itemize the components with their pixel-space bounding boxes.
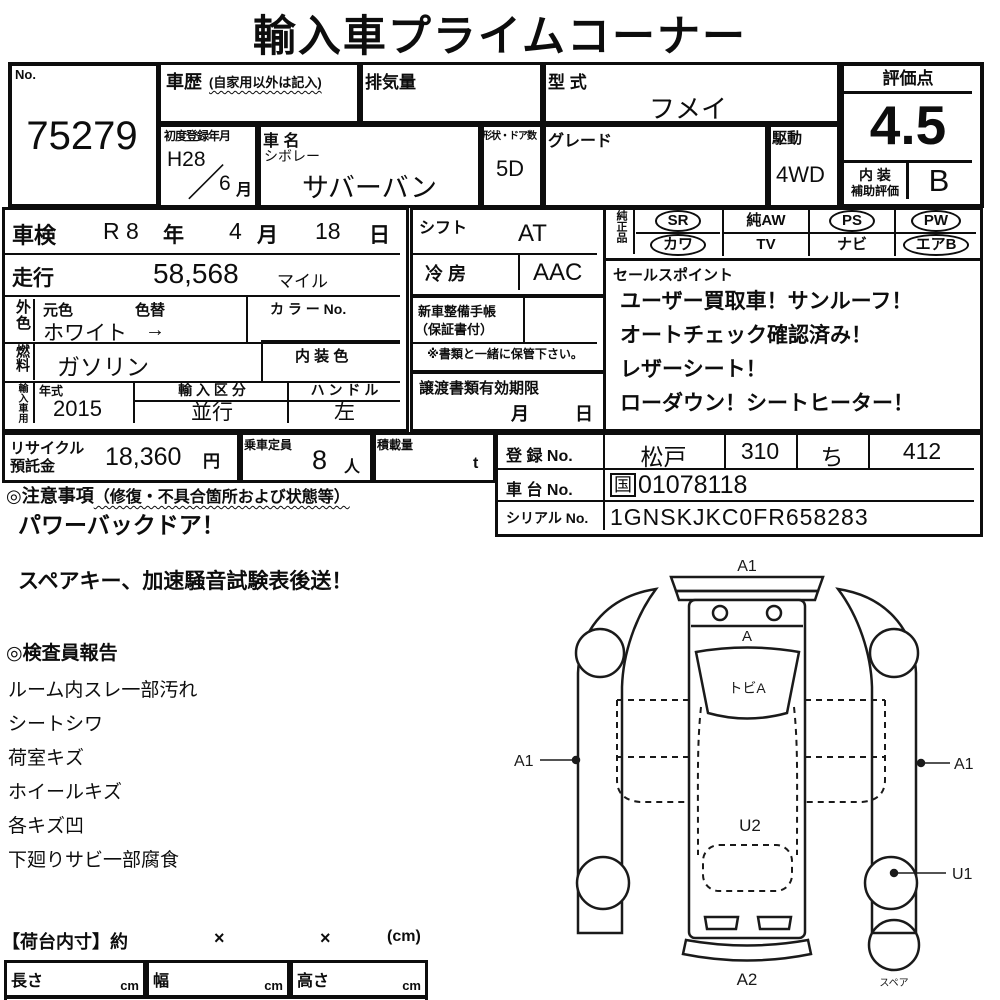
recycle-box: リサイクル 預託金 18,360 円 (2, 432, 243, 483)
inspector-item: 下廻りサビ一部腐食 (8, 845, 179, 872)
score-box: 評価点 4.5 内 装 補助評価 B (840, 62, 984, 208)
cargo-length-cell: 長さ cm (4, 960, 146, 998)
car-damage-diagram: A1 A トビA A1 A1 U2 U1 A2 スペア (500, 555, 995, 1000)
chassis-divider (603, 470, 605, 500)
cargo-dims-title: 【荷台内寸】約 (2, 928, 128, 954)
doors-value: 5D (481, 156, 539, 182)
color-no-cell: カ ラ ー No. (246, 297, 400, 342)
ac-value: AAC (533, 259, 582, 287)
interior-color-label: 内 装 色 (295, 345, 348, 366)
color-change-arrow: → (145, 319, 165, 342)
recycle-value: 18,360 (105, 443, 181, 472)
sales-point-line: ローダウン！シートヒーター！ (620, 387, 914, 417)
drive-cell: 駆動 4WD (765, 121, 840, 208)
shaken-day-unit: 日 (369, 219, 390, 249)
load-label: 積載量 (377, 436, 413, 453)
lot-number-value: 75279 (12, 114, 152, 159)
reg-kana: ち (798, 438, 866, 472)
car-maker: シボレー (264, 146, 320, 166)
score-value: 4.5 (844, 92, 972, 158)
score-label: 評価点 (844, 66, 972, 94)
diagram-label-a1-left: A1 (514, 753, 534, 770)
rear-left-wheel (577, 857, 629, 909)
equipment-side-label: 純正品 (609, 210, 635, 254)
shift-row: シフト AT (413, 210, 597, 255)
transfer-day-unit: 日 (575, 400, 593, 426)
sales-points-box: セールスポイント ユーザー買取車！サンルーフ！ オートチェック確認済み！ レザー… (603, 258, 983, 432)
equip-pw: PW (894, 210, 976, 232)
handle-label: ハ ン ド ル (289, 383, 400, 402)
grade-cell: グレード (540, 121, 771, 208)
first-reg-month: 6 (219, 172, 231, 196)
inspector-item: ルーム内スレ一部汚れ (8, 675, 197, 702)
service-book-box: 新車整備手帳 （保証書付） ※書類と一緒に保管下さい。 (410, 295, 606, 373)
service-book-label2: （保証書付） (415, 319, 493, 338)
interior-label-line2: 補助評価 (844, 182, 906, 199)
ac-label: 冷 房 (425, 260, 521, 286)
change-color-label: 色替 (135, 299, 165, 320)
diagram-label-hood-a: A (742, 628, 752, 645)
inspector-item: ホイールキズ (8, 777, 122, 804)
capacity-value: 8 (312, 445, 327, 476)
first-reg-label: 初度登録年月 (164, 127, 230, 144)
capacity-box: 乗車定員 8 人 (237, 432, 376, 483)
dashed-zone-left (617, 700, 689, 802)
page-title: 輸入車プライムコーナー (0, 2, 1000, 64)
rear-bumper (683, 940, 811, 961)
front-bumper (671, 577, 823, 591)
cargo-dims-unit: (cm) (387, 928, 421, 946)
load-box: 積載量 t (370, 432, 496, 483)
transfer-box: 譲渡書類有効期限 月 日 (410, 371, 606, 432)
handle-cell: ハ ン ド ル 左 (287, 383, 400, 423)
diagram-label-a1-right: A1 (954, 756, 974, 773)
inspector-report-label: ◎検査員報告 (6, 638, 118, 665)
diagram-label-u2: U2 (739, 816, 761, 835)
a1-left-dot (573, 757, 579, 763)
displacement-cell: 排気量 (357, 62, 546, 127)
notes-header: ◎注意事項（修復・不具合箇所および状態等） (6, 482, 350, 508)
import-class-label: 輸 入 区 分 (135, 383, 289, 402)
ac-row: 冷 房 AAC (413, 255, 597, 288)
import-row: 輸入車用 年式 2015 輸 入 区 分 並行 ハ ン ド ル 左 (5, 383, 400, 423)
chassis-value: 01078118 (638, 471, 747, 500)
first-reg-month-unit: 月 (236, 176, 252, 200)
diagram-label-a2: A2 (737, 970, 758, 989)
cargo-height-cell: 高さ cm (290, 960, 428, 998)
shaken-month-unit: 月 (257, 219, 278, 249)
front-right-wheel (870, 629, 918, 677)
cargo-dims-x1: × (214, 928, 225, 949)
recycle-unit: 円 (203, 447, 220, 472)
cargo-width-cell: 幅 cm (146, 960, 290, 998)
front-left-wheel (576, 629, 624, 677)
serial-label: シリアル No. (506, 508, 588, 528)
inspector-item: シートシワ (8, 709, 103, 736)
reg-row: 登 録 No. 松戸 310 ち 412 (498, 435, 974, 470)
serial-row: シリアル No. 1GNSKJKC0FR658283 (498, 502, 974, 530)
drive-value: 4WD (768, 162, 833, 188)
doors-cell: 形状・ドア数 5D (478, 121, 546, 208)
history-note: (自家用以外は記入) (209, 72, 322, 91)
diagram-label-u1: U1 (952, 866, 973, 883)
inspector-item: 各キズ凹 (8, 811, 84, 838)
main-spec-table: 車検 R 8 年 4 月 18 日 走行 58,568 マイル 外色 元色 色替… (2, 207, 409, 432)
exterior-color-value: ホワイト (43, 317, 127, 347)
chassis-label: 車 台 No. (506, 476, 573, 500)
shift-value: AT (518, 220, 547, 248)
reg-label: 登 録 No. (506, 442, 601, 466)
cargo-width-unit: cm (264, 978, 283, 993)
inspector-item: 荷室キズ (8, 743, 84, 770)
interior-score-row: 内 装 補助評価 B (844, 160, 972, 199)
car-name-cell: 車 名 シボレー サバーバン (255, 121, 484, 208)
diagram-label-a1-top: A1 (737, 558, 757, 575)
sales-points-label: セールスポイント (613, 264, 733, 285)
fuel-side-label: 燃料 (7, 344, 35, 380)
import-year-value: 2015 (53, 396, 102, 422)
load-unit: t (473, 455, 478, 473)
equipment-box: 純正品 SR 純AW PS PW カワ TV ナビ エアB (603, 207, 983, 261)
cargo-dims-x2: × (320, 928, 331, 949)
shaken-era-unit: 年 (163, 219, 184, 249)
import-side-label: 輸入車用 (9, 383, 35, 423)
exterior-color-row: 外色 元色 色替 ホワイト → カ ラ ー No. (5, 297, 400, 344)
service-book-value-cell (525, 298, 597, 344)
notes-sub: （修復・不具合箇所および状態等） (94, 489, 350, 506)
shaken-label: 車検 (12, 218, 56, 250)
cargo-length-unit: cm (120, 978, 139, 993)
equip-navi: ナビ (808, 232, 894, 256)
handle-value: 左 (289, 402, 400, 424)
equip-kawa: カワ (636, 232, 720, 256)
service-book-label1: 新車整備手帳 (418, 301, 496, 320)
a1-right-dot (918, 760, 924, 766)
keep-note: ※書類と一緒に保管下さい。 (413, 344, 597, 364)
reg-number: 412 (870, 438, 974, 465)
doors-label: 形状・ドア数 (482, 127, 536, 142)
drive-label: 駆動 (772, 127, 802, 148)
cargo-height-unit: cm (402, 978, 421, 993)
service-book-cell: 新車整備手帳 （保証書付） (413, 298, 525, 344)
interior-color-cell: 内 装 色 (261, 340, 400, 383)
capacity-unit: 人 (344, 453, 360, 477)
mileage-row: 走行 58,568 マイル (5, 255, 400, 297)
chassis-prefix: 国 (610, 473, 636, 497)
history-cell: 車歴 (自家用以外は記入) (158, 62, 363, 127)
fuel-value: ガソリン (57, 348, 149, 382)
cargo-height-label: 高さ (297, 967, 329, 991)
shaken-row: 車検 R 8 年 4 月 18 日 (5, 210, 400, 255)
import-class-cell: 輸 入 区 分 並行 (133, 383, 289, 423)
cargo-next-row-edge (4, 996, 428, 1000)
grade-label: グレード (548, 127, 612, 151)
mileage-label: 走行 (12, 262, 54, 292)
equip-airb: エアB (894, 232, 976, 256)
lot-number-box: No. 75279 (8, 62, 160, 208)
shift-label: シフト (419, 214, 467, 238)
transfer-label: 譲渡書類有効期限 (419, 377, 539, 398)
serial-divider (603, 502, 605, 530)
cargo-length-label: 長さ (11, 967, 43, 991)
equip-sr: SR (636, 210, 720, 232)
transfer-month-unit: 月 (511, 400, 529, 426)
shipping-note: スペアキー、加速騒音試験表後送！ (18, 565, 352, 595)
lot-number-label: No. (15, 67, 36, 82)
notes-label: ◎注意事項 (6, 486, 94, 506)
interior-score-value: B (909, 163, 969, 199)
car-model: サバーバン (258, 166, 481, 205)
shaken-era: R 8 (103, 218, 139, 245)
displacement-label: 排気量 (365, 68, 416, 93)
equip-aw: 純AW (722, 210, 808, 232)
sales-point-line: ユーザー買取車！サンルーフ！ (620, 285, 912, 315)
recycle-label2: 預託金 (10, 455, 55, 476)
shaken-month: 4 (229, 218, 242, 245)
u1-dot (891, 870, 897, 876)
registration-box: 登 録 No. 松戸 310 ち 412 車 台 No. 国 01078118 … (495, 432, 983, 537)
auction-sheet: 輸入車プライムコーナー No. 75279 車歴 (自家用以外は記入) 排気量 … (0, 0, 1000, 1000)
mileage-unit: マイル (277, 267, 328, 292)
capacity-label: 乗車定員 (244, 436, 292, 453)
history-label: 車歴 (166, 68, 202, 94)
import-class-value: 並行 (135, 402, 289, 424)
first-reg-cell: 初度登録年月 H28 ／ 6 月 (158, 121, 261, 208)
ac-divider (518, 253, 520, 290)
equip-ps: PS (808, 210, 894, 232)
shift-ac-box: シフト AT 冷 房 AAC (410, 207, 606, 297)
diagram-label-spare: スペア (879, 978, 908, 989)
color-no-label: カ ラ ー No. (270, 299, 346, 319)
front-bumper-strip (676, 591, 818, 600)
mileage-value: 58,568 (153, 258, 239, 290)
reg-class: 310 (726, 438, 794, 465)
rear-right-wheel (865, 857, 917, 909)
exterior-side-label: 外色 (7, 299, 35, 341)
diagram-label-windshield: トビA (728, 680, 766, 696)
serial-value: 1GNSKJKC0FR658283 (610, 504, 869, 531)
fuel-row: 燃料 ガソリン 内 装 色 (5, 344, 400, 383)
reg-area: 松戸 (605, 438, 722, 472)
sales-point-line: オートチェック確認済み！ (620, 319, 872, 349)
sales-point-line: レザーシート！ (620, 353, 767, 383)
equip-tv: TV (722, 232, 808, 256)
cargo-width-label: 幅 (153, 967, 169, 991)
notes-line: パワーバックドア！ (18, 506, 225, 540)
interior-score-label-cell: 内 装 補助評価 (844, 163, 909, 199)
shaken-day: 18 (315, 218, 341, 245)
model-code-cell: 型 式 フメイ (540, 62, 840, 127)
chassis-row: 車 台 No. 国 01078118 (498, 470, 974, 502)
